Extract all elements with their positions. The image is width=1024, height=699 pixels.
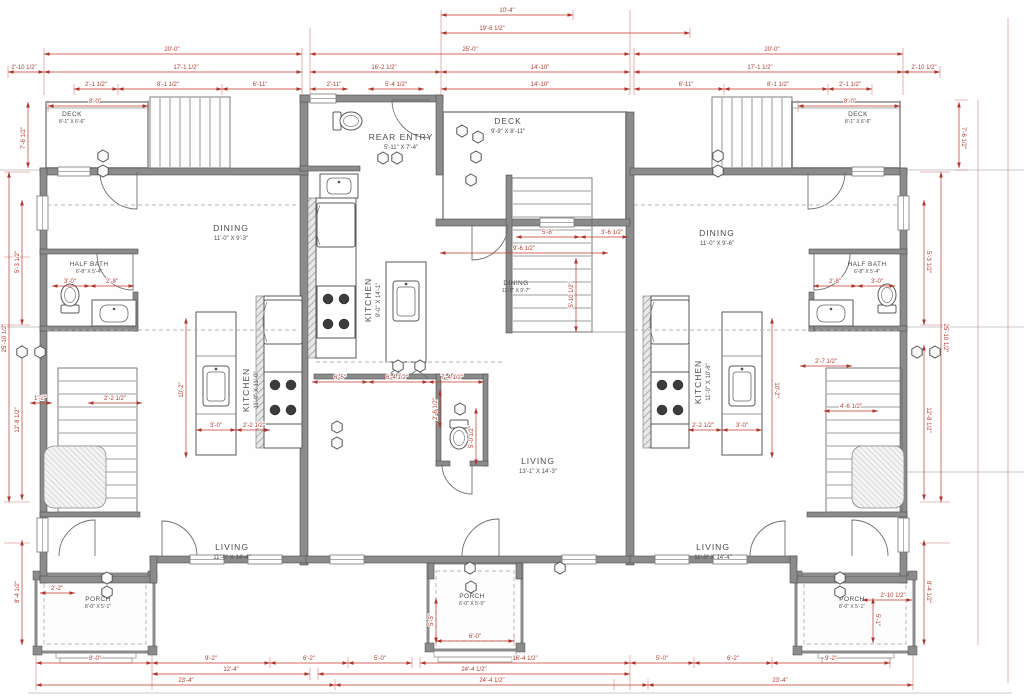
svg-text:KITCHEN: KITCHEN — [693, 360, 703, 404]
dimension: 10'-2" — [772, 318, 779, 458]
svg-text:25'-10 1/2": 25'-10 1/2" — [2, 324, 8, 353]
svg-text:2'-2 1/2": 2'-2 1/2" — [692, 423, 714, 429]
dimension: 5'-3 1/2" — [924, 200, 931, 325]
svg-text:16'-4 1/2": 16'-4 1/2" — [512, 656, 537, 662]
room-label-left-dining: DINING11'-0" X 9'-3" — [213, 223, 249, 242]
dimension: 2'-7 1/2" — [800, 359, 852, 366]
dimension: 2'-10 1/2" — [903, 65, 940, 72]
dimension: 2'-2 1/2" — [88, 396, 142, 403]
middle-stairs — [512, 178, 592, 332]
svg-text:8'-0" X 5'-1": 8'-0" X 5'-1" — [839, 604, 865, 610]
dimension: 10'-2" — [179, 318, 186, 458]
right-deck — [792, 102, 900, 168]
room-label-right-deck: DECK8'-1" X 6'-6" — [845, 111, 871, 125]
dimension: 2'-8" — [90, 279, 134, 286]
svg-text:5'-0": 5'-0" — [656, 656, 668, 662]
svg-text:6'-5": 6'-5" — [334, 375, 346, 381]
dimension: 10'-4" — [441, 8, 573, 15]
toilet-icon — [878, 284, 896, 313]
svg-text:5'-10 1/2": 5'-10 1/2" — [569, 282, 575, 307]
svg-text:10'-4": 10'-4" — [499, 8, 514, 14]
svg-text:8'-4 1/2": 8'-4 1/2" — [15, 581, 21, 603]
svg-text:6'-4 1/2": 6'-4 1/2" — [386, 375, 408, 381]
keynote-hex-icon — [17, 346, 27, 358]
svg-text:PORCH: PORCH — [459, 593, 484, 600]
svg-text:11'-5" X 9'-7": 11'-5" X 9'-7" — [502, 288, 531, 294]
powder-door — [442, 464, 472, 494]
svg-text:7'-6 1/2": 7'-6 1/2" — [21, 127, 27, 149]
svg-text:20'-0": 20'-0" — [164, 47, 179, 53]
svg-text:11'-0" X 10'-8": 11'-0" X 10'-8" — [706, 363, 712, 400]
dimension: 25'-10 1/2" — [941, 172, 948, 502]
keynote-hex-icon — [98, 150, 108, 162]
keynote-hex-icon — [392, 152, 402, 164]
svg-text:11'-0" X 9'-6": 11'-0" X 9'-6" — [700, 241, 734, 247]
svg-text:6'-8" X 5'-4": 6'-8" X 5'-4" — [854, 269, 880, 275]
understair-storage — [852, 446, 904, 508]
svg-text:11'-0" X 11'-0": 11'-0" X 11'-0" — [254, 371, 260, 408]
svg-text:DECK: DECK — [494, 116, 522, 126]
dimension: 5'-4 1/2" — [368, 82, 424, 89]
dimension: 14'-10" — [441, 65, 630, 72]
svg-text:2'-7 1/2": 2'-7 1/2" — [815, 359, 837, 365]
understair-storage — [44, 446, 106, 508]
room-label-left-deck: DECK8'-1" X 6'-6" — [59, 111, 85, 125]
keynote-hex-icon — [555, 562, 565, 574]
keynote-hex-icon — [466, 174, 476, 186]
svg-text:7'-4 1/2": 7'-4 1/2" — [441, 375, 463, 381]
right-interior-stairs — [826, 368, 904, 512]
keynote-hex-icon — [455, 403, 465, 415]
svg-text:14'-10": 14'-10" — [531, 82, 550, 88]
fridge-icon — [263, 300, 302, 344]
dimension: 2'-2 1/2" — [688, 423, 722, 430]
keynote-hex-icon — [393, 360, 403, 372]
svg-text:8'-1" X 6'-6": 8'-1" X 6'-6" — [845, 119, 871, 125]
dimension: 8'-4 1/2" — [15, 540, 22, 645]
dimension: 3'-0" — [52, 279, 90, 286]
keynote-hex-icon — [835, 572, 845, 584]
svg-text:13'-1" X 14'-3": 13'-1" X 14'-3" — [519, 469, 557, 475]
svg-text:2'-8": 2'-8" — [829, 279, 841, 285]
svg-text:3'-0": 3'-0" — [736, 423, 748, 429]
svg-text:2'-1 1/2": 2'-1 1/2" — [85, 82, 107, 88]
svg-text:24'-4 1/2": 24'-4 1/2" — [479, 678, 504, 684]
floor-plan-sheet: 10'-4"19'-6 1/2"25'-0"20'-0"20'-0"2'-10 … — [0, 0, 1024, 699]
dimension: 19'-6 1/2" — [441, 26, 690, 33]
room-label-rear-entry: REAR ENTRY5'-11" X 7'-4" — [369, 132, 434, 151]
svg-text:2'-10 1/2": 2'-10 1/2" — [11, 65, 36, 71]
left-kitchen-counter — [263, 296, 302, 448]
left-porch — [33, 571, 157, 663]
dimension: 6'-2" — [270, 656, 348, 663]
dimension: 7'-6 1/2" — [959, 102, 966, 168]
interior-walls — [40, 166, 907, 517]
keynote-hex-icon — [835, 586, 845, 598]
left-kitchen-island — [196, 312, 236, 455]
right-interior-door — [852, 520, 888, 556]
keynote-symbols — [17, 125, 940, 598]
svg-text:8'-1" X 6'-6": 8'-1" X 6'-6" — [59, 119, 85, 125]
sink-icon — [809, 300, 853, 326]
svg-text:6'-2": 6'-2" — [727, 656, 739, 662]
middle-front-door — [462, 519, 499, 556]
svg-text:5'-1": 5'-1" — [874, 614, 880, 626]
svg-text:PORCH: PORCH — [839, 596, 864, 603]
room-label-mid-living: LIVING13'-1" X 14'-3" — [519, 456, 557, 475]
room-label-mid-kitchen: KITCHEN9'-0" X 14'-1" — [363, 278, 382, 322]
left-front-door — [162, 521, 197, 556]
svg-text:DINING: DINING — [213, 223, 249, 233]
svg-text:9'-6 1/2": 9'-6 1/2" — [513, 246, 535, 252]
svg-text:5'-11" X 7'-4": 5'-11" X 7'-4" — [384, 145, 418, 151]
room-label-right-living: LIVING11'-0" X 14'-4" — [694, 542, 731, 561]
sink-icon — [729, 366, 755, 406]
rear-entry-fixtures — [320, 112, 362, 198]
svg-text:23'-4": 23'-4" — [772, 678, 787, 684]
dimension: 5'-3 1/2" — [15, 200, 22, 325]
dimension: 7'-6 1/2" — [21, 102, 28, 168]
right-halfbath-fixtures — [809, 284, 896, 326]
svg-text:25'-10 1/2": 25'-10 1/2" — [942, 324, 948, 353]
fridge-icon — [316, 203, 355, 247]
windows — [37, 94, 909, 564]
right-porch — [793, 571, 917, 663]
svg-text:17'-1 1/2": 17'-1 1/2" — [747, 65, 772, 71]
svg-text:5'-0": 5'-0" — [374, 656, 386, 662]
svg-text:23'-4": 23'-4" — [178, 678, 193, 684]
svg-text:LIVING: LIVING — [696, 542, 730, 552]
svg-text:LIVING: LIVING — [521, 456, 555, 466]
svg-text:2'-2 1/2": 2'-2 1/2" — [243, 423, 265, 429]
svg-text:5'-3 1/2": 5'-3 1/2" — [15, 251, 21, 273]
stove-icon — [651, 372, 689, 424]
dimension: 24'-4 1/2" — [335, 678, 648, 685]
dimension: 8'-1 1/2" — [724, 82, 828, 89]
keynote-hex-icon — [102, 586, 112, 598]
powder-room-fixtures — [450, 420, 468, 449]
dimension: 8'-4 1/2" — [924, 540, 931, 645]
toilet-icon — [450, 420, 468, 449]
svg-text:9'-2": 9'-2" — [825, 656, 837, 662]
svg-text:25'-0": 25'-0" — [462, 47, 477, 53]
stove-icon — [317, 286, 355, 338]
middle-kitchen-island — [386, 262, 426, 362]
svg-text:11'-0" X 14'-4": 11'-0" X 14'-4" — [213, 555, 250, 561]
room-label-right-dining: DINING11'-0" X 9'-6" — [699, 228, 735, 247]
dimension: 8'-1 1/2" — [118, 82, 222, 89]
dimension: 16'-2 1/2" — [310, 65, 441, 72]
svg-text:14'-10": 14'-10" — [531, 65, 550, 71]
dimension: 2'-10 1/2" — [8, 65, 44, 72]
svg-text:6'-0" X 5'-5": 6'-0" X 5'-5" — [459, 601, 485, 607]
keynote-hex-icon — [35, 346, 45, 358]
svg-text:KITCHEN: KITCHEN — [241, 368, 251, 412]
svg-text:5'-8": 5'-8" — [542, 230, 554, 236]
svg-text:REAR ENTRY: REAR ENTRY — [369, 132, 434, 142]
keynote-hex-icon — [415, 360, 425, 372]
keynote-hex-icon — [465, 562, 475, 574]
svg-text:12'-4": 12'-4" — [223, 667, 238, 673]
svg-text:DINING: DINING — [699, 228, 735, 238]
dimension: 4'-6 1/2" — [824, 404, 878, 411]
dimension: 23'-4" — [648, 678, 913, 685]
svg-text:3'-6 1/2": 3'-6 1/2" — [601, 230, 623, 236]
middle-kitchen-counter — [316, 198, 356, 358]
left-halfbath-fixtures — [61, 284, 136, 326]
dimension: 9'-2" — [772, 656, 890, 663]
dimension: 17'-1 1/2" — [634, 65, 903, 72]
svg-text:3'-0": 3'-0" — [64, 279, 76, 285]
room-label-mid-deck: DECK9'-9" X 8'-11" — [491, 116, 525, 135]
dimension: 2'-11" — [310, 82, 348, 89]
sink-icon — [203, 366, 229, 406]
exterior-stairs-left — [150, 97, 230, 168]
sink-icon — [393, 281, 419, 321]
keynote-hex-icon — [378, 152, 388, 164]
keynote-hex-icon — [457, 125, 467, 137]
svg-text:24'-4 1/2": 24'-4 1/2" — [461, 667, 486, 673]
keynote-hex-icon — [102, 572, 112, 584]
sink-icon — [92, 300, 136, 326]
svg-text:KITCHEN: KITCHEN — [363, 278, 373, 322]
svg-text:8'-1 1/2": 8'-1 1/2" — [767, 82, 789, 88]
dimension: 6'-2" — [694, 656, 772, 663]
keynote-hex-icon — [912, 346, 922, 358]
svg-text:2'-2 1/2": 2'-2 1/2" — [104, 396, 126, 402]
svg-text:5'-0 1/2": 5'-0 1/2" — [469, 426, 475, 448]
dimension: 9'-2" — [152, 656, 270, 663]
svg-text:8'-0": 8'-0" — [89, 656, 101, 662]
dimension: 5'-8" — [516, 230, 580, 237]
keynote-hex-icon — [471, 151, 481, 163]
svg-text:2'-2": 2'-2" — [51, 586, 63, 592]
svg-text:2'-8": 2'-8" — [106, 279, 118, 285]
left-interior-door — [59, 520, 95, 556]
dimension: 24'-4 1/2" — [318, 667, 630, 674]
svg-text:10'-2": 10'-2" — [773, 382, 779, 397]
dimension: 6'-11" — [222, 82, 302, 89]
svg-text:DECK: DECK — [848, 111, 868, 118]
svg-text:3'-0": 3'-0" — [210, 423, 222, 429]
dimension: 3'-6 1/2" — [580, 230, 628, 237]
svg-text:6'-11": 6'-11" — [679, 82, 694, 88]
svg-text:HALF BATH: HALF BATH — [848, 261, 887, 268]
svg-text:19'-6 1/2": 19'-6 1/2" — [479, 26, 504, 32]
svg-text:9'-0" X 14'-1": 9'-0" X 14'-1" — [376, 283, 382, 318]
svg-text:16'-2 1/2": 16'-2 1/2" — [371, 65, 396, 71]
svg-text:8'-0": 8'-0" — [844, 99, 856, 105]
svg-text:2'-11": 2'-11" — [327, 82, 342, 88]
svg-text:8'-1 1/2": 8'-1 1/2" — [157, 82, 179, 88]
floor-plan-drawing: 10'-4"19'-6 1/2"25'-0"20'-0"20'-0"2'-10 … — [0, 0, 1024, 699]
keynote-hex-icon — [473, 131, 483, 143]
svg-text:9'-2": 9'-2" — [205, 656, 217, 662]
dimension: 5'-0" — [630, 656, 694, 663]
dimension: 6'-11" — [634, 82, 724, 89]
toilet-icon — [61, 284, 79, 313]
svg-text:8'-4 1/2": 8'-4 1/2" — [925, 581, 931, 603]
svg-text:7'-6 1/2": 7'-6 1/2" — [960, 127, 966, 149]
dimension: 2'-2 1/2" — [236, 423, 270, 430]
right-rear-door — [808, 172, 845, 209]
room-label-left-living: LIVING11'-0" X 14'-4" — [213, 542, 250, 561]
svg-text:DECK: DECK — [62, 111, 82, 118]
right-front-door — [750, 521, 785, 556]
svg-text:10'-2": 10'-2" — [179, 382, 185, 397]
toilet-icon — [333, 112, 362, 130]
svg-text:12'-8 1/2": 12'-8 1/2" — [15, 407, 21, 432]
svg-text:4'-6 1/2": 4'-6 1/2" — [840, 404, 862, 410]
svg-text:5'-3 1/2": 5'-3 1/2" — [925, 251, 931, 273]
right-kitchen-island — [722, 312, 762, 455]
svg-text:2'-6 1/2": 2'-6 1/2" — [433, 398, 439, 420]
svg-text:2'-10 1/2": 2'-10 1/2" — [911, 65, 936, 71]
svg-text:17'-1 1/2": 17'-1 1/2" — [173, 65, 198, 71]
room-label-right-kitchen: KITCHEN11'-0" X 10'-8" — [693, 360, 712, 404]
dimension: 12'-4" — [152, 667, 310, 674]
keynote-hex-icon — [332, 437, 342, 449]
dimension: 5'-0 1/2" — [469, 408, 476, 465]
svg-text:DINING: DINING — [503, 280, 528, 287]
dimension: 2'-1 1/2" — [74, 82, 118, 89]
svg-text:6'-2": 6'-2" — [303, 656, 315, 662]
svg-text:6'-0": 6'-0" — [469, 634, 481, 640]
svg-text:8'-0" X 5'-1": 8'-0" X 5'-1" — [85, 604, 111, 610]
keynote-hex-icon — [713, 150, 723, 162]
svg-text:6'-11": 6'-11" — [253, 82, 268, 88]
dimension: 9'-6 1/2" — [440, 246, 608, 253]
dimension: 2'-1 1/2" — [828, 82, 872, 89]
svg-text:8'-0": 8'-0" — [89, 99, 101, 105]
left-interior-stairs — [44, 368, 137, 512]
dimension: 17'-1 1/2" — [44, 65, 302, 72]
svg-text:11'-0" X 9'-3": 11'-0" X 9'-3" — [214, 236, 248, 242]
svg-text:6'-8" X 5'-4": 6'-8" X 5'-4" — [76, 269, 102, 275]
room-label-left-kitchen: KITCHEN11'-0" X 11'-0" — [241, 368, 260, 412]
dimension: 12'-8 1/2" — [924, 345, 931, 500]
dimension: 23'-4" — [36, 678, 335, 685]
svg-text:9'-9" X 8'-11": 9'-9" X 8'-11" — [491, 129, 525, 135]
keynote-hex-icon — [466, 581, 476, 593]
svg-text:11'-0" X 14'-4": 11'-0" X 14'-4" — [694, 555, 731, 561]
svg-text:3'-0": 3'-0" — [871, 279, 883, 285]
keynote-hex-icon — [332, 421, 342, 433]
svg-text:2'-1 1/2": 2'-1 1/2" — [839, 82, 861, 88]
dimension: 25'-10 1/2" — [2, 172, 9, 502]
svg-text:2'-10 1/2": 2'-10 1/2" — [880, 593, 905, 599]
svg-text:12'-8 1/2": 12'-8 1/2" — [925, 407, 931, 432]
right-kitchen-counter — [650, 296, 689, 448]
dimension: 8'-0" — [36, 656, 152, 663]
dimension: 25'-0" — [310, 47, 630, 54]
svg-text:1'-2": 1'-2" — [34, 396, 46, 402]
svg-text:LIVING: LIVING — [215, 542, 249, 552]
keynote-hex-icon — [930, 346, 940, 358]
keynote-hex-icon — [98, 165, 108, 177]
exterior-stairs-right — [712, 97, 792, 168]
dimension: 1'-2" — [30, 396, 52, 403]
fridge-icon — [650, 300, 689, 344]
dimension: 20'-0" — [44, 47, 302, 54]
keynote-hex-icon — [713, 165, 723, 177]
middle-porch — [425, 563, 525, 662]
dimension: 2'-8" — [813, 279, 857, 286]
dimension: 5'-0" — [348, 656, 412, 663]
room-label-right-halfbath: HALF BATH6'-8" X 5'-4" — [848, 261, 887, 275]
stove-icon — [264, 372, 302, 424]
dimension: 12'-8 1/2" — [15, 345, 22, 500]
dimension: 20'-0" — [634, 47, 903, 54]
svg-text:5'-4 1/2": 5'-4 1/2" — [385, 82, 407, 88]
left-rear-door — [100, 172, 137, 209]
svg-text:20'-0": 20'-0" — [764, 47, 779, 53]
dimension: 14'-10" — [441, 82, 630, 89]
svg-text:HALF BATH: HALF BATH — [70, 261, 109, 268]
deck-door — [472, 224, 508, 260]
svg-text:5'-5": 5'-5" — [429, 614, 435, 626]
